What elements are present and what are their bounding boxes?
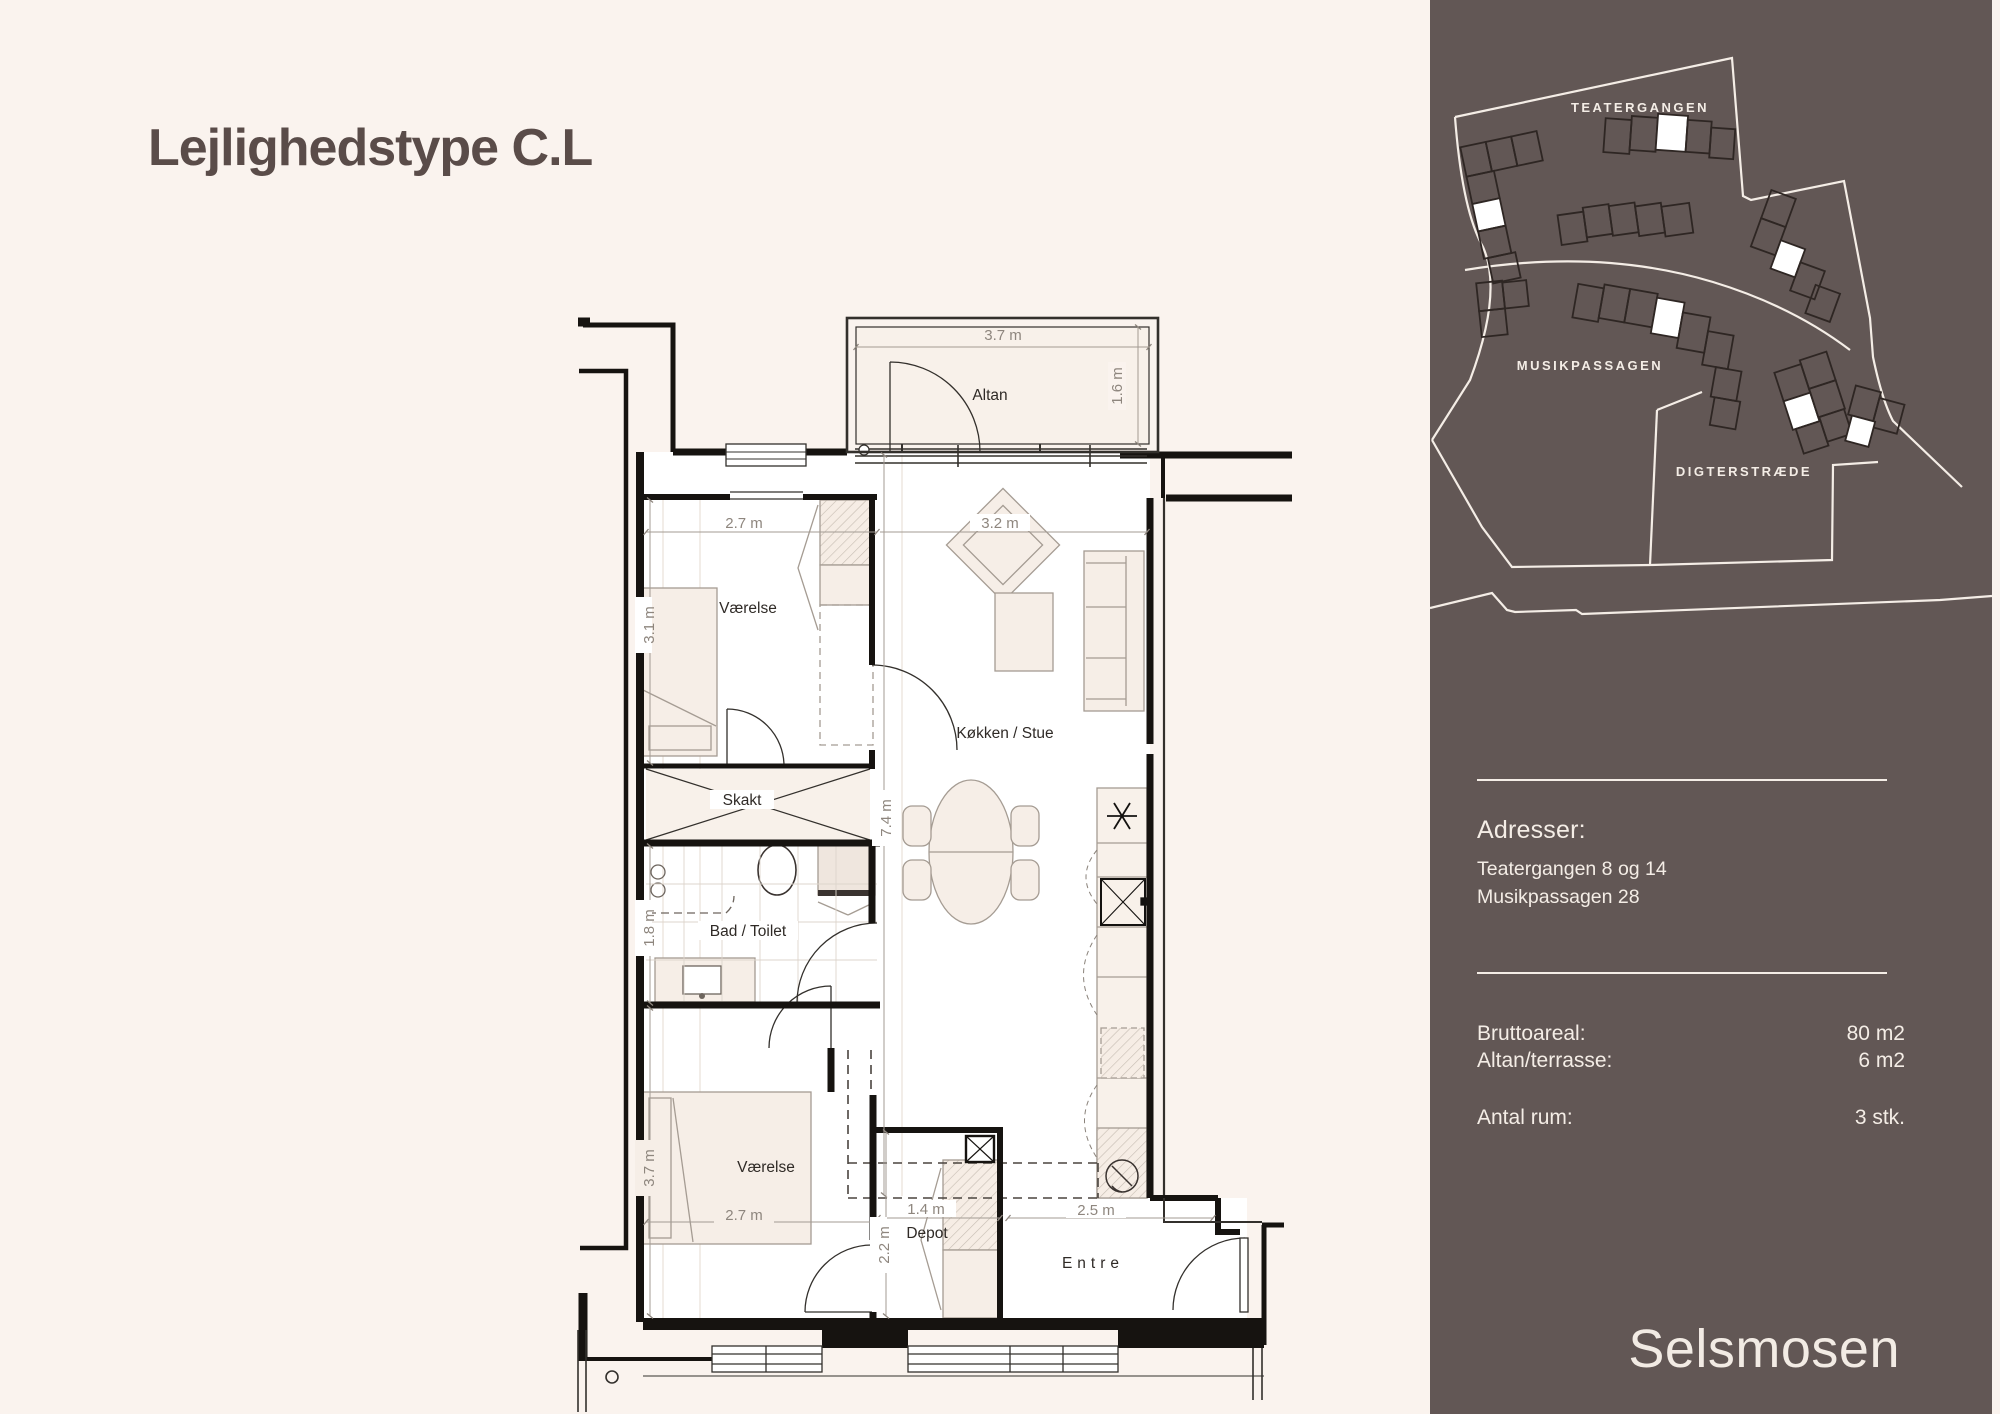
brochure-page: Lejlighedstype C.L bbox=[0, 0, 2000, 1414]
fact-value: 80 m2 bbox=[1847, 1020, 1905, 1047]
dim-balcony-width: 3.7 m bbox=[984, 327, 1022, 344]
fact-value: 3 stk. bbox=[1855, 1104, 1905, 1131]
address-line-2: Musikpassagen 28 bbox=[1477, 883, 1902, 911]
brand-logo: Selsmosen bbox=[1628, 1318, 1900, 1380]
building-cluster-ne bbox=[1736, 190, 1866, 322]
dim-bedroom1-width: 2.7 m bbox=[725, 515, 763, 532]
room-label-bedroom2: Værelse bbox=[737, 1159, 795, 1176]
dim-apartment-depth: 7.4 m bbox=[878, 799, 895, 837]
room-label-storage: Depot bbox=[906, 1225, 948, 1242]
fact-label: Antal rum: bbox=[1477, 1104, 1573, 1131]
street-label-teatergangen: TEATERGANGEN bbox=[1571, 100, 1709, 115]
street-label-musikpassagen: MUSIKPASSAGEN bbox=[1517, 358, 1663, 373]
dim-living-width: 3.2 m bbox=[981, 515, 1019, 532]
site-map-labels: TEATERGANGEN MUSIKPASSAGEN DIGTERSTRÆDE bbox=[1517, 100, 1812, 479]
dim-storage-depth: 2.2 m bbox=[876, 1226, 893, 1264]
building-cluster-digter bbox=[1773, 352, 1854, 455]
sidebar-divider-bottom bbox=[1477, 972, 1887, 974]
dim-bath-depth: 1.8 m bbox=[641, 909, 658, 947]
building-cluster-w bbox=[1476, 278, 1531, 337]
room-label-entry: Entre bbox=[1062, 1255, 1124, 1272]
sidebar-divider-top bbox=[1477, 779, 1887, 781]
dim-balcony-depth: 1.6 m bbox=[1109, 367, 1126, 405]
dim-bedroom1-depth: 3.1 m bbox=[641, 606, 658, 644]
room-label-bedroom1: Værelse bbox=[719, 600, 777, 617]
address-line-1: Teatergangen 8 og 14 bbox=[1477, 855, 1902, 883]
fact-label: Bruttoareal: bbox=[1477, 1020, 1586, 1047]
building-cluster-mid bbox=[1557, 193, 1693, 251]
fact-row-balcony: Altan/terrasse: 6 m2 bbox=[1477, 1047, 1905, 1074]
depot-vent-box bbox=[966, 1136, 994, 1162]
fact-row-gross-area: Bruttoareal: 80 m2 bbox=[1477, 1020, 1905, 1047]
address-block: Adresser: Teatergangen 8 og 14 Musikpass… bbox=[1477, 816, 1902, 911]
building-cluster-e bbox=[1841, 386, 1906, 454]
room-label-shaft: Skakt bbox=[723, 792, 762, 809]
room-label-bath: Bad / Toilet bbox=[710, 923, 787, 940]
dim-entry-width: 2.5 m bbox=[1077, 1202, 1115, 1219]
room-label-altan: Altan bbox=[972, 387, 1007, 404]
fact-row-rooms: Antal rum: 3 stk. bbox=[1477, 1104, 1905, 1131]
facts-block: Bruttoareal: 80 m2 Altan/terrasse: 6 m2 … bbox=[1477, 1020, 1905, 1131]
sofa bbox=[1084, 551, 1144, 711]
bath-vanity bbox=[655, 958, 755, 1002]
site-map-buildings bbox=[1460, 110, 1906, 454]
dim-bedroom2-width: 2.7 m bbox=[725, 1207, 763, 1224]
building-cluster-n bbox=[1603, 110, 1736, 161]
fact-value: 6 m2 bbox=[1858, 1047, 1905, 1074]
street-label-digterstraede: DIGTERSTRÆDE bbox=[1676, 464, 1812, 479]
room-label-living: Køkken / Stue bbox=[956, 725, 1053, 742]
site-map: TEATERGANGEN MUSIKPASSAGEN DIGTERSTRÆDE bbox=[1430, 0, 1992, 620]
fact-label: Altan/terrasse: bbox=[1477, 1047, 1612, 1074]
dim-bedroom2-depth: 3.7 m bbox=[641, 1149, 658, 1187]
coffee-table bbox=[995, 593, 1053, 671]
address-heading: Adresser: bbox=[1477, 816, 1902, 845]
building-cluster-musik bbox=[1558, 280, 1756, 429]
info-sidebar: TEATERGANGEN MUSIKPASSAGEN DIGTERSTRÆDE … bbox=[1430, 0, 1992, 1414]
dim-storage-width: 1.4 m bbox=[907, 1201, 945, 1218]
